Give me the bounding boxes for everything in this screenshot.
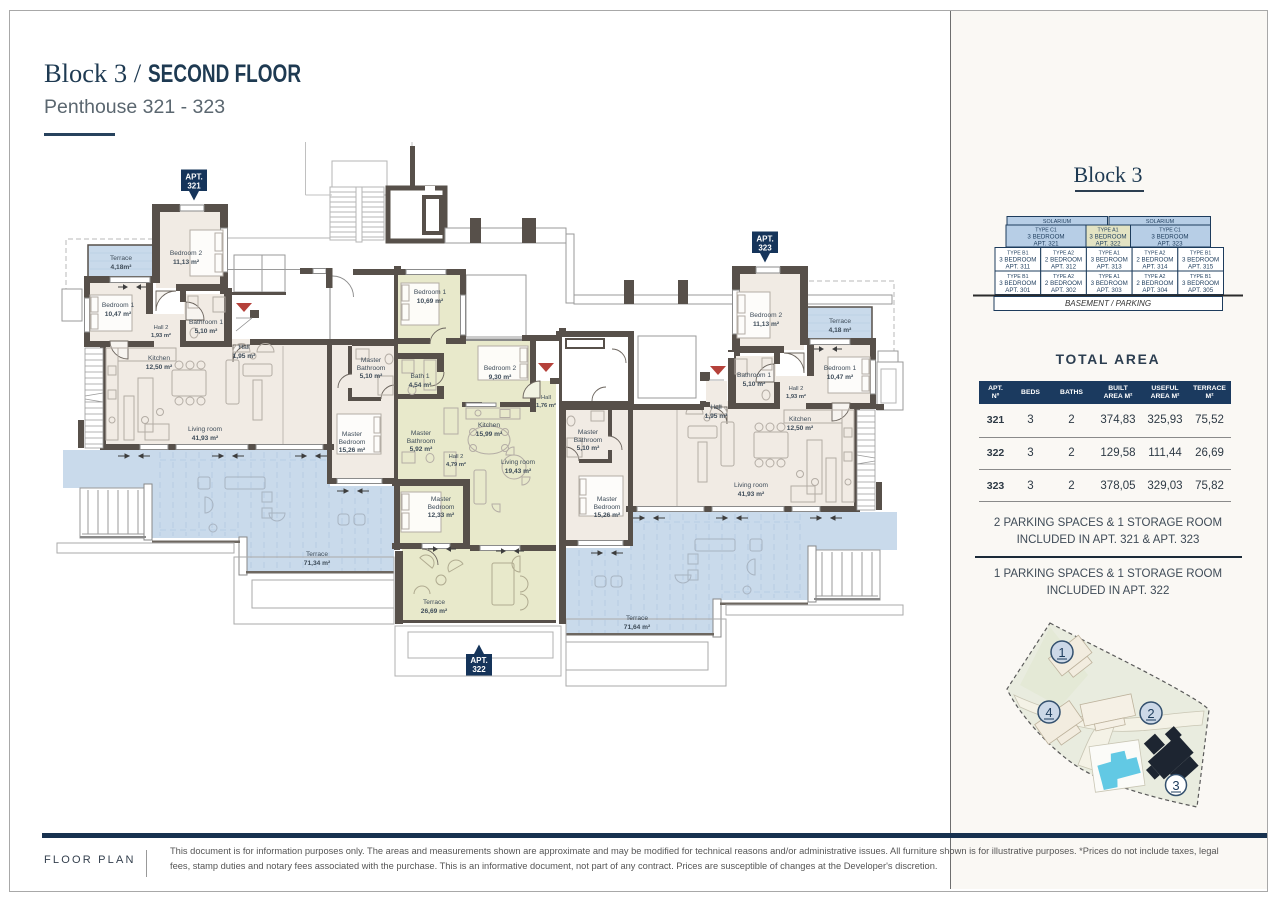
svg-text:SOLARIUM: SOLARIUM: [1043, 219, 1072, 225]
svg-text:APT.323: APT.323: [756, 235, 773, 253]
svg-text:SOLARIUM: SOLARIUM: [1146, 219, 1175, 225]
svg-text:MasterBedroom15,26 m²: MasterBedroom15,26 m²: [339, 431, 366, 454]
svg-text:MasterBedroom12,33 m²: MasterBedroom12,33 m²: [428, 496, 455, 519]
svg-text:APT.321: APT.321: [185, 173, 202, 191]
svg-text:MasterBedroom15,26 m²: MasterBedroom15,26 m²: [594, 496, 621, 519]
svg-text:BASEMENT / PARKING: BASEMENT / PARKING: [1065, 299, 1151, 308]
svg-text:2: 2: [1147, 706, 1154, 721]
svg-text:1: 1: [1058, 645, 1065, 660]
svg-text:3: 3: [1172, 778, 1179, 793]
svg-text:APT.322: APT.322: [470, 656, 487, 674]
svg-text:4: 4: [1045, 705, 1052, 720]
